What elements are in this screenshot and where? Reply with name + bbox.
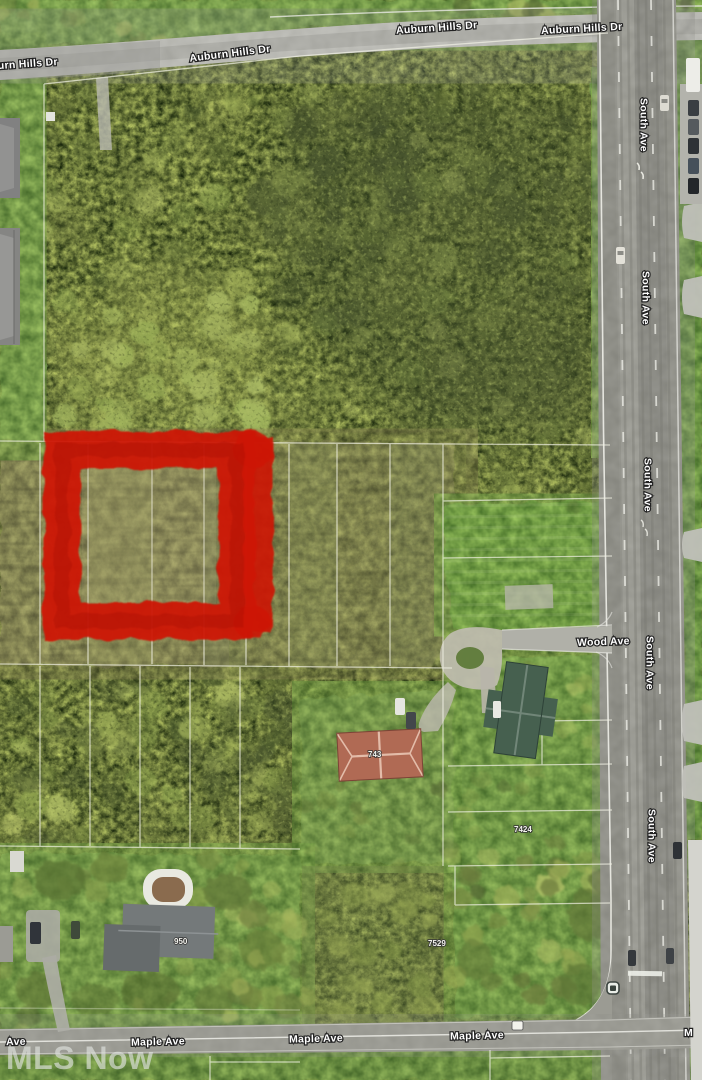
svg-text:South Ave: South Ave	[638, 98, 650, 152]
svg-text:743: 743	[368, 750, 382, 759]
svg-text:Maple Ave: Maple Ave	[289, 1032, 343, 1045]
svg-text:MLS Now: MLS Now	[6, 1040, 153, 1076]
svg-text:7424: 7424	[514, 825, 532, 834]
svg-text:South Ave: South Ave	[642, 458, 654, 512]
svg-text:Maple Ave: Maple Ave	[450, 1029, 504, 1042]
svg-text:South Ave: South Ave	[644, 636, 656, 690]
svg-text:South Ave: South Ave	[640, 271, 652, 325]
svg-text:Wood Ave: Wood Ave	[577, 635, 630, 649]
svg-text:950: 950	[174, 937, 188, 946]
svg-text:M: M	[684, 1027, 693, 1039]
svg-text:7529: 7529	[428, 939, 446, 948]
svg-text:South Ave: South Ave	[646, 809, 658, 863]
